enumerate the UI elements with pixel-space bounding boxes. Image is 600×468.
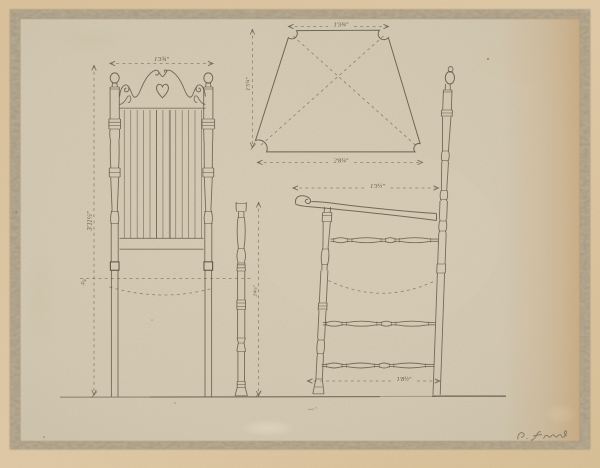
- svg-text:2′4¼″: 2′4¼″: [252, 285, 257, 296]
- svg-text:2′8¼″: 2′8¼″: [334, 158, 349, 165]
- svg-text:1′3¾″: 1′3¾″: [334, 22, 349, 29]
- svg-text:3′11½″: 3′11½″: [87, 211, 94, 231]
- svg-text:1′8½″: 1′8½″: [397, 376, 412, 383]
- svg-text:1′3½″: 1′3½″: [370, 183, 385, 190]
- svg-text:1′5¾″: 1′5¾″: [246, 77, 252, 91]
- svg-text:1′3¾″: 1′3¾″: [154, 56, 169, 63]
